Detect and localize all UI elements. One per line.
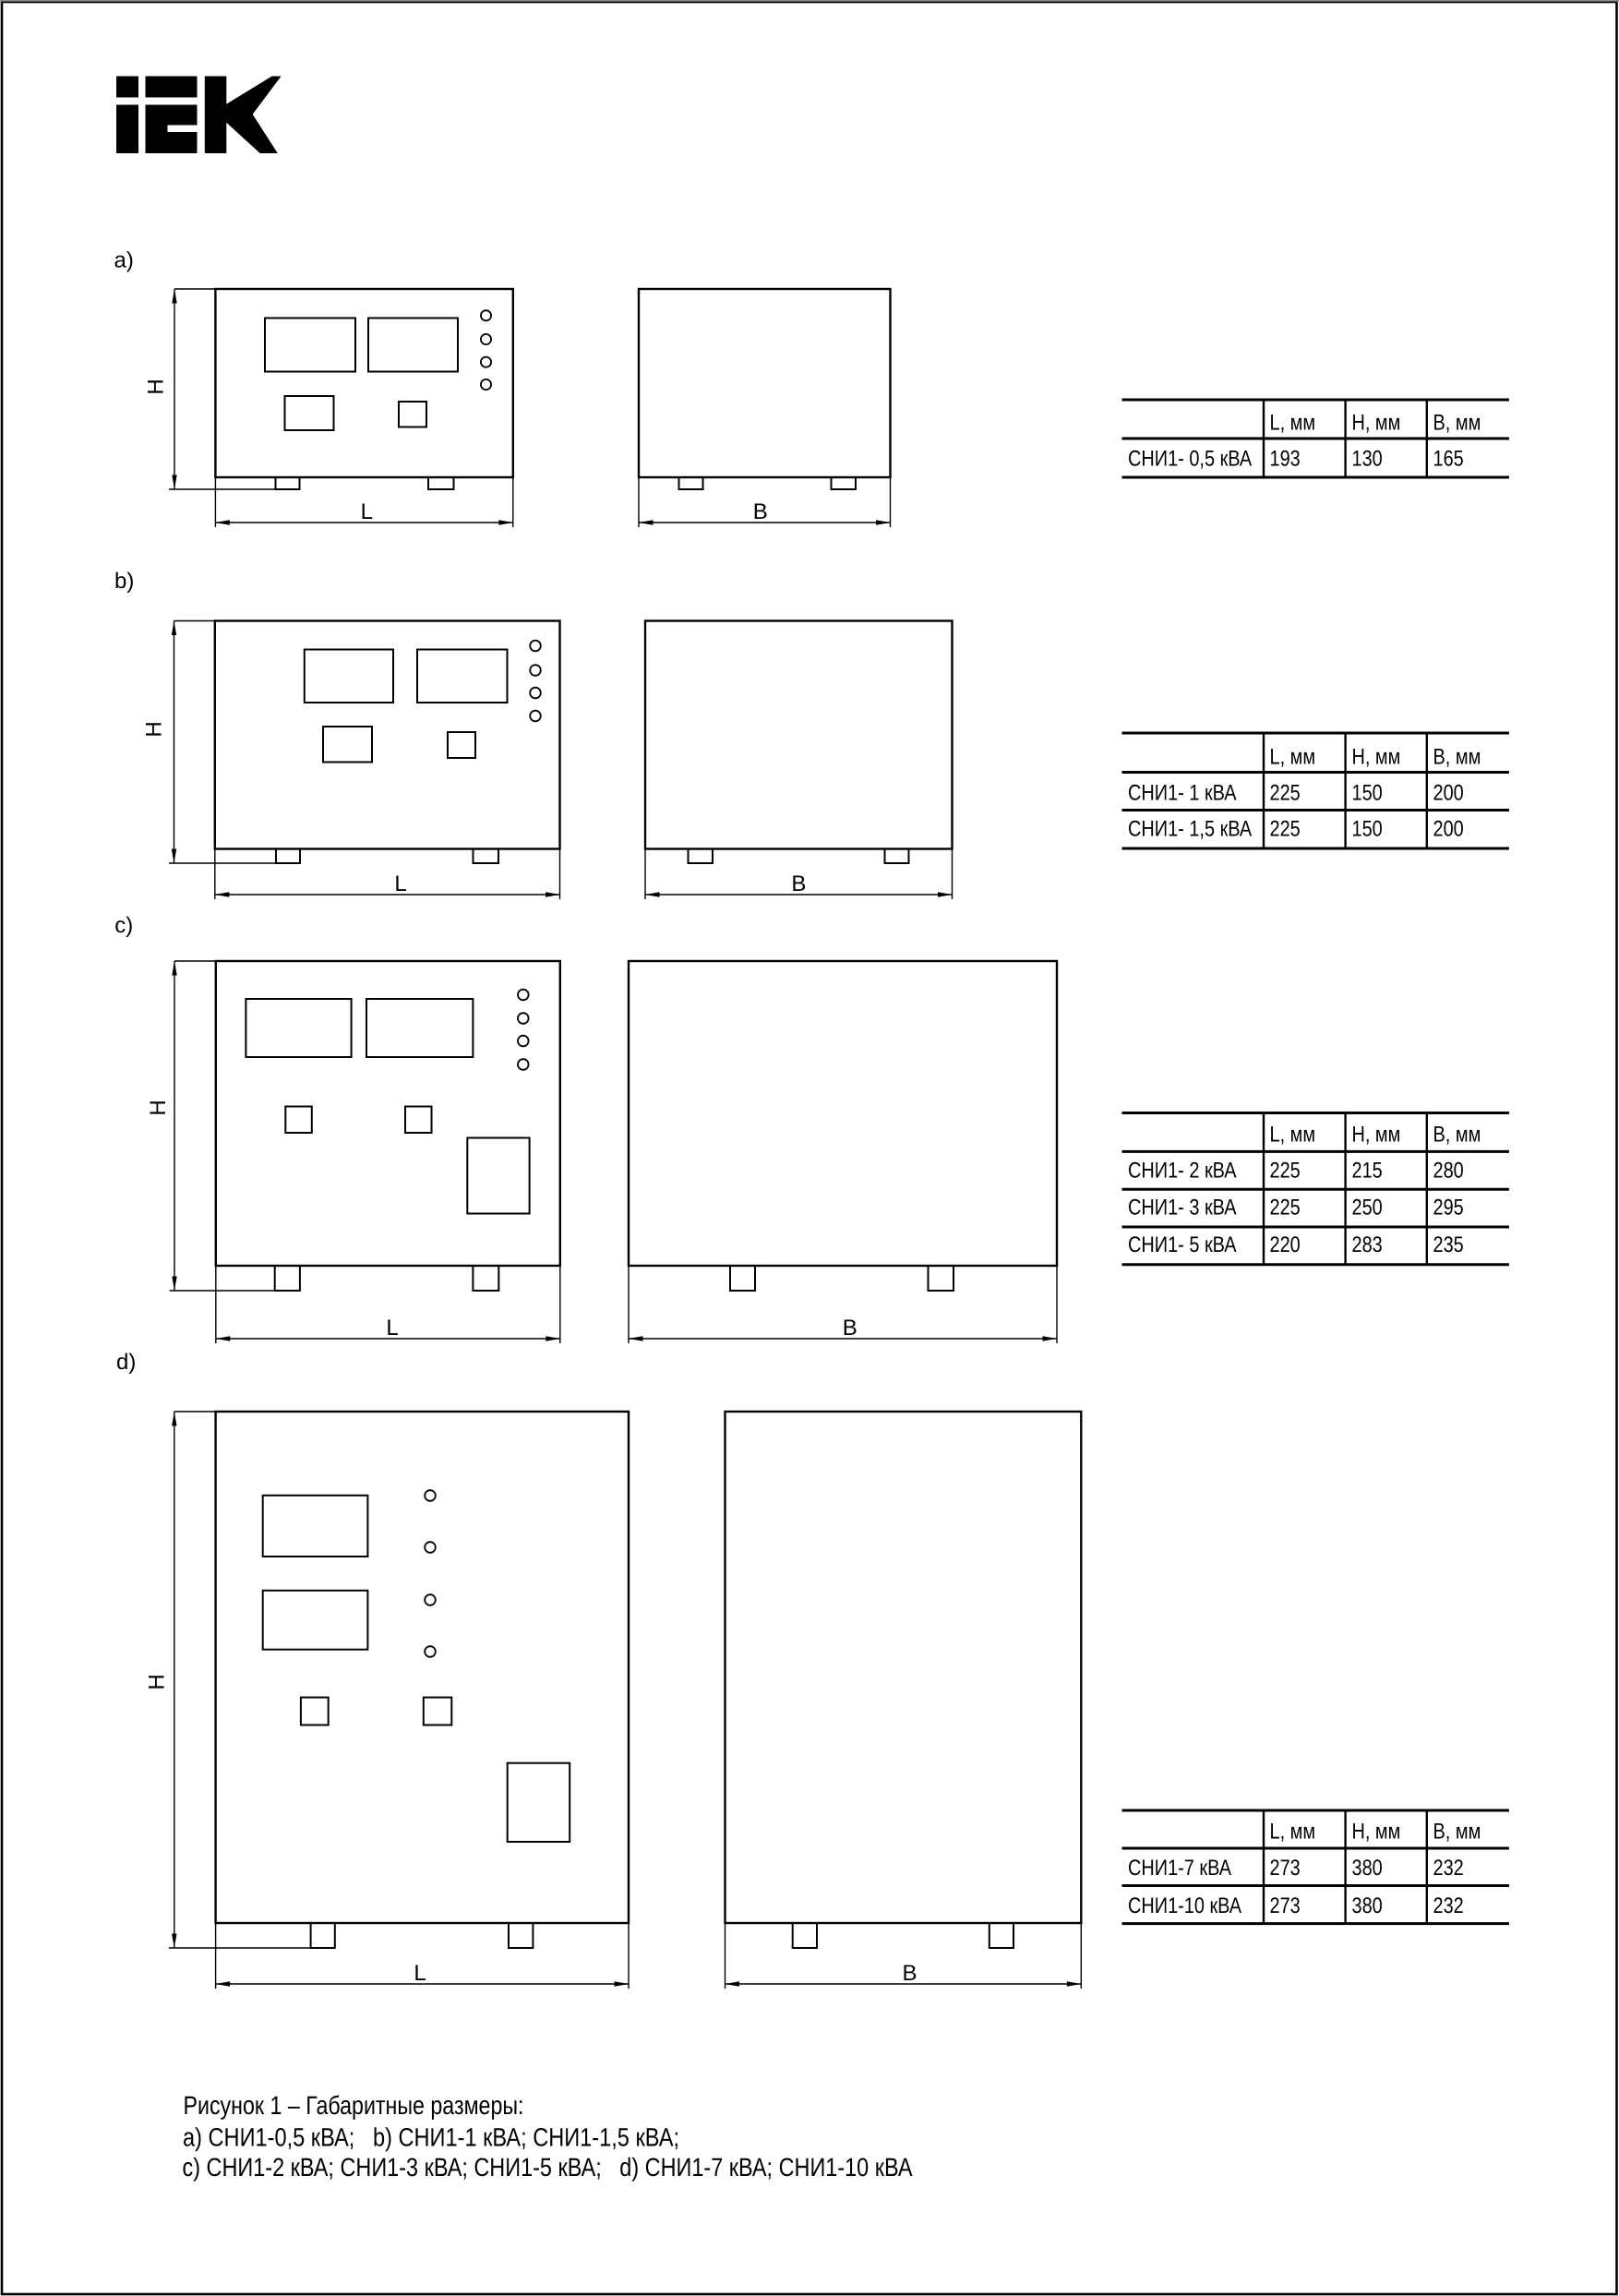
- svg-text:B: B: [902, 1961, 917, 1986]
- svg-text:150: 150: [1352, 781, 1383, 806]
- svg-text:150: 150: [1352, 817, 1383, 842]
- svg-text:СНИ1-10 кВА: СНИ1-10 кВА: [1128, 1893, 1241, 1918]
- svg-text:232: 232: [1433, 1893, 1464, 1918]
- svg-text:B, мм: B, мм: [1433, 1123, 1481, 1148]
- svg-text:200: 200: [1433, 781, 1464, 806]
- svg-text:B: B: [753, 499, 768, 524]
- svg-text:СНИ1-7 кВА: СНИ1-7 кВА: [1128, 1856, 1231, 1881]
- svg-text:200: 200: [1433, 817, 1464, 842]
- svg-text:L, мм: L, мм: [1270, 745, 1316, 770]
- svg-text:СНИ1- 5 кВА: СНИ1- 5 кВА: [1128, 1232, 1237, 1257]
- svg-text:380: 380: [1352, 1856, 1383, 1881]
- svg-text:L: L: [386, 1316, 398, 1340]
- svg-text:295: 295: [1433, 1195, 1464, 1220]
- svg-text:B: B: [791, 872, 806, 896]
- svg-text:L, мм: L, мм: [1270, 1820, 1316, 1845]
- svg-text:СНИ1- 3 кВА: СНИ1- 3 кВА: [1128, 1195, 1237, 1220]
- svg-text:B, мм: B, мм: [1433, 745, 1481, 770]
- svg-text:225: 225: [1270, 1159, 1301, 1184]
- svg-text:b): b): [114, 569, 134, 594]
- svg-text:B: B: [843, 1316, 857, 1340]
- svg-text:250: 250: [1352, 1195, 1383, 1220]
- svg-text:B, мм: B, мм: [1433, 411, 1481, 436]
- svg-text:280: 280: [1433, 1159, 1464, 1184]
- svg-text:380: 380: [1352, 1893, 1383, 1918]
- svg-text:H: H: [146, 1100, 171, 1115]
- svg-text:165: 165: [1433, 447, 1464, 472]
- svg-text:L, мм: L, мм: [1270, 411, 1316, 436]
- svg-text:СНИ1- 1,5 кВА: СНИ1- 1,5 кВА: [1128, 817, 1252, 842]
- svg-text:235: 235: [1433, 1232, 1464, 1257]
- svg-text:a): a): [114, 248, 134, 273]
- svg-text:273: 273: [1270, 1856, 1301, 1881]
- svg-text:H, мм: H, мм: [1352, 411, 1401, 436]
- svg-text:H, мм: H, мм: [1352, 1820, 1401, 1845]
- svg-text:283: 283: [1352, 1232, 1383, 1257]
- svg-text:c): c): [114, 913, 133, 938]
- svg-text:225: 225: [1270, 1195, 1301, 1220]
- svg-text:H: H: [142, 721, 167, 737]
- svg-text:193: 193: [1270, 447, 1301, 472]
- svg-text:H, мм: H, мм: [1352, 745, 1401, 770]
- svg-text:H: H: [145, 1674, 170, 1689]
- svg-text:225: 225: [1270, 781, 1301, 806]
- svg-text:130: 130: [1352, 447, 1383, 472]
- svg-text:220: 220: [1270, 1232, 1301, 1257]
- svg-text:273: 273: [1270, 1893, 1301, 1918]
- svg-text:a) СНИ1-0,5 кВА; b) СНИ1-1 к: a) СНИ1-0,5 кВА; b) СНИ1-1 кВА; СНИ1-1,5…: [183, 2123, 679, 2152]
- svg-text:L: L: [361, 499, 373, 524]
- svg-text:232: 232: [1433, 1856, 1464, 1881]
- svg-text:B, мм: B, мм: [1433, 1820, 1481, 1845]
- svg-text:d): d): [116, 1350, 136, 1375]
- svg-text:H: H: [144, 379, 169, 394]
- svg-text:Рисунок 1 – Габаритные размеры: Рисунок 1 – Габаритные размеры:: [184, 2091, 524, 2120]
- svg-text:H, мм: H, мм: [1352, 1123, 1401, 1148]
- svg-text:L, мм: L, мм: [1270, 1123, 1316, 1148]
- svg-text:СНИ1- 2 кВА: СНИ1- 2 кВА: [1128, 1159, 1237, 1184]
- svg-text:L: L: [414, 1961, 426, 1986]
- svg-text:СНИ1- 0,5 кВА: СНИ1- 0,5 кВА: [1128, 447, 1252, 472]
- svg-text:СНИ1- 1 кВА: СНИ1- 1 кВА: [1128, 781, 1237, 806]
- svg-text:L: L: [394, 872, 406, 896]
- svg-text:c) СНИ1-2 кВА; СНИ1-3 кВА; СНИ: c) СНИ1-2 кВА; СНИ1-3 кВА; СНИ1-5 кВА; d…: [183, 2153, 913, 2182]
- svg-text:225: 225: [1270, 817, 1301, 842]
- svg-text:215: 215: [1352, 1159, 1383, 1184]
